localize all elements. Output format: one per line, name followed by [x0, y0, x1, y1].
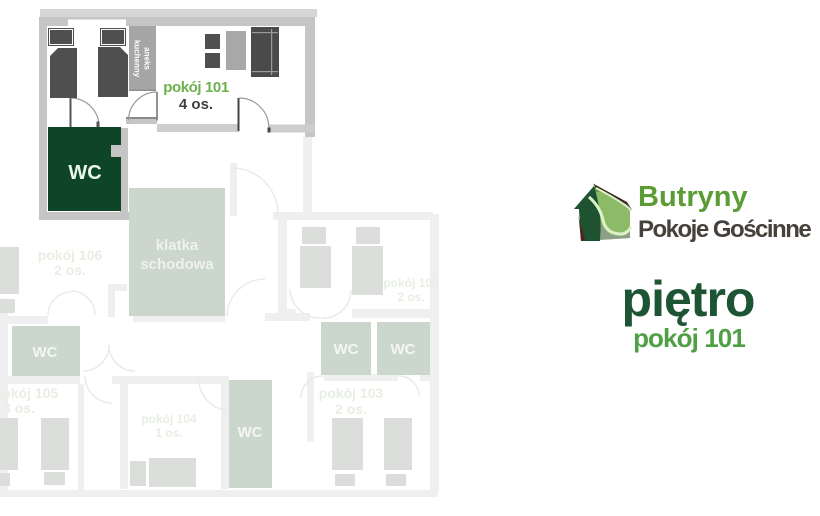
svg-text:schodowa: schodowa	[140, 256, 214, 273]
svg-text:Pokoje Gościnne: Pokoje Gościnne	[638, 216, 811, 243]
svg-text:pokój 102: pokój 102	[383, 276, 439, 290]
svg-text:Butryny: Butryny	[638, 181, 748, 213]
svg-text:pokój 104: pokój 104	[141, 412, 197, 426]
svg-text:piętro: piętro	[622, 271, 755, 327]
svg-text:2 os.: 2 os.	[397, 290, 424, 304]
svg-text:pokój 101: pokój 101	[163, 79, 229, 96]
svg-text:2 os.: 2 os.	[54, 262, 86, 278]
svg-text:WC: WC	[334, 341, 359, 358]
svg-text:klatka: klatka	[156, 237, 199, 254]
svg-text:WC: WC	[238, 424, 263, 441]
svg-text:WC: WC	[391, 341, 416, 358]
svg-text:pokój 105: pokój 105	[0, 385, 58, 401]
svg-text:aneks: aneks	[143, 47, 152, 70]
svg-text:WC: WC	[33, 344, 58, 361]
svg-text:pokój 101: pokój 101	[633, 323, 745, 353]
svg-text:2 os.: 2 os.	[335, 401, 367, 417]
svg-text:WC: WC	[68, 162, 101, 184]
svg-text:pokój 106: pokój 106	[38, 247, 103, 263]
svg-text:pokój 103: pokój 103	[319, 385, 384, 401]
svg-text:1 os.: 1 os.	[155, 426, 182, 440]
svg-text:3 os.: 3 os.	[3, 400, 35, 416]
svg-text:kuchenny: kuchenny	[133, 40, 142, 78]
svg-text:4 os.: 4 os.	[179, 96, 213, 113]
